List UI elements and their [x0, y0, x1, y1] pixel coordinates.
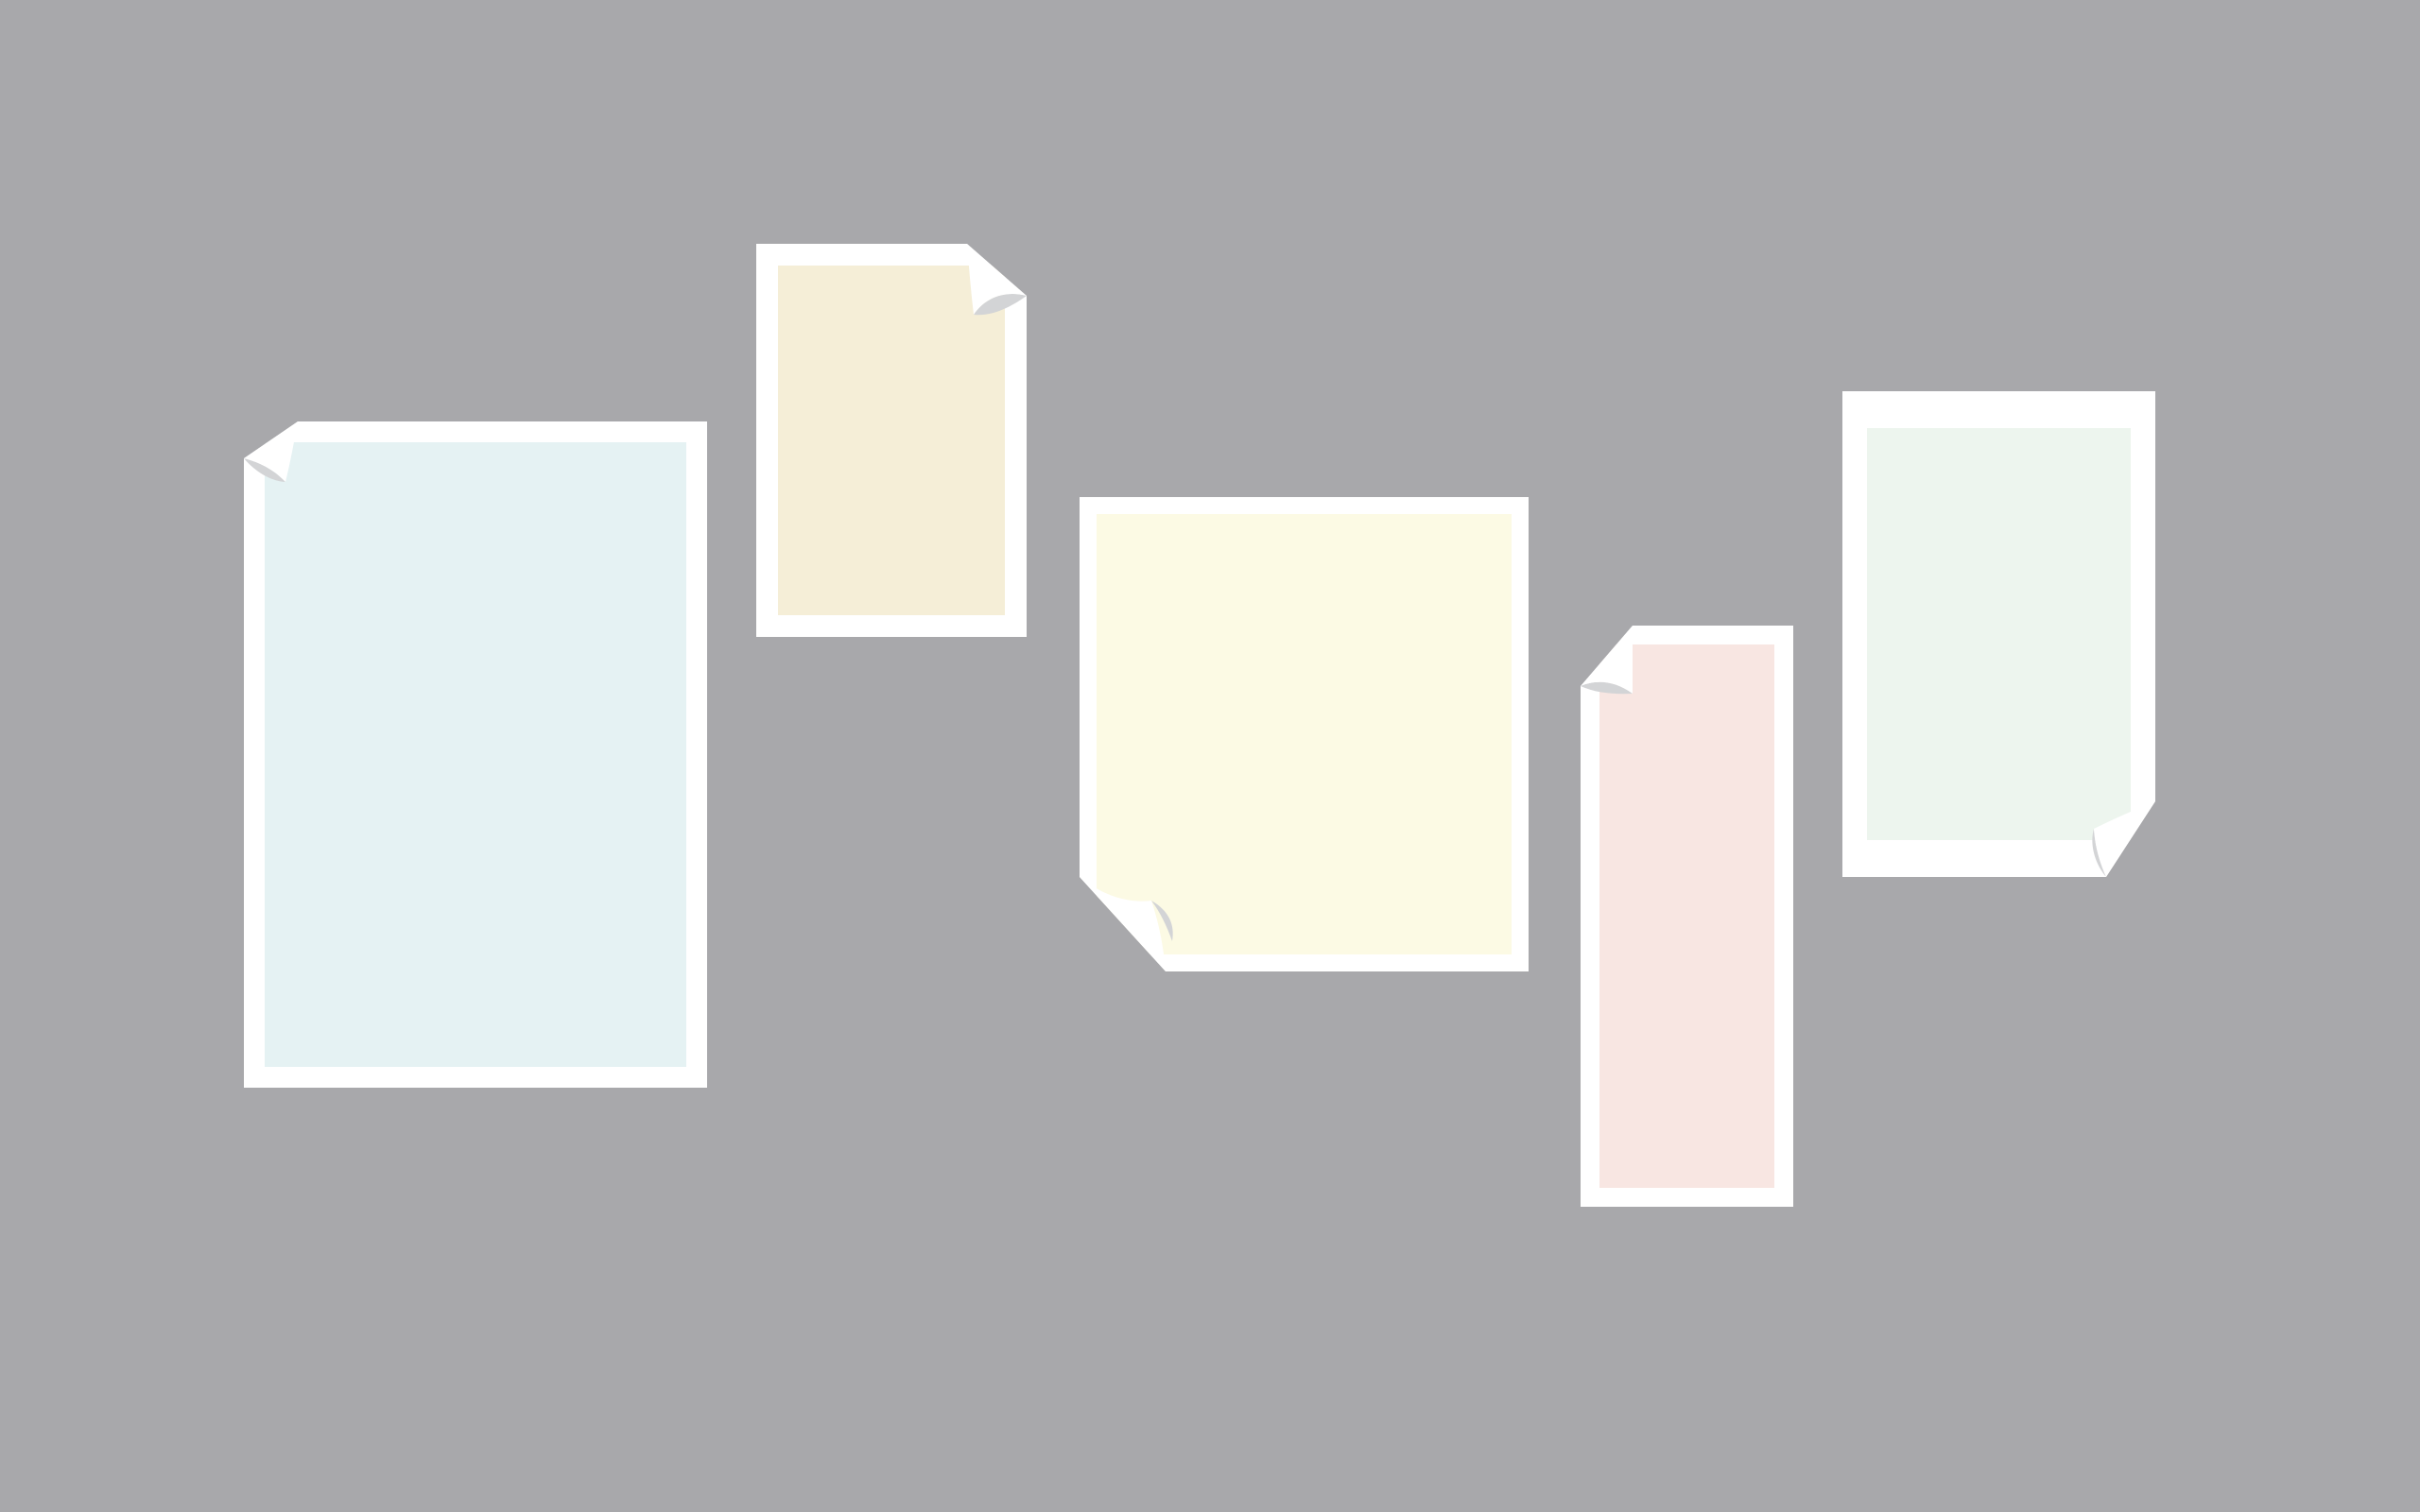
cream-sheet-fill [778, 266, 1005, 615]
green-sheet-fill [1867, 428, 2131, 840]
blue-sheet [244, 421, 707, 1088]
yellow-sheet-fill [1097, 514, 1512, 954]
green-sheet [1842, 391, 2155, 877]
yellow-sheet [1080, 497, 1529, 971]
blue-sheet-fill [265, 442, 686, 1067]
paper-collage-canvas [0, 0, 2420, 1512]
cream-sheet [756, 244, 1027, 637]
pink-sheet [1581, 626, 1793, 1207]
pink-sheet-fill [1599, 644, 1774, 1188]
